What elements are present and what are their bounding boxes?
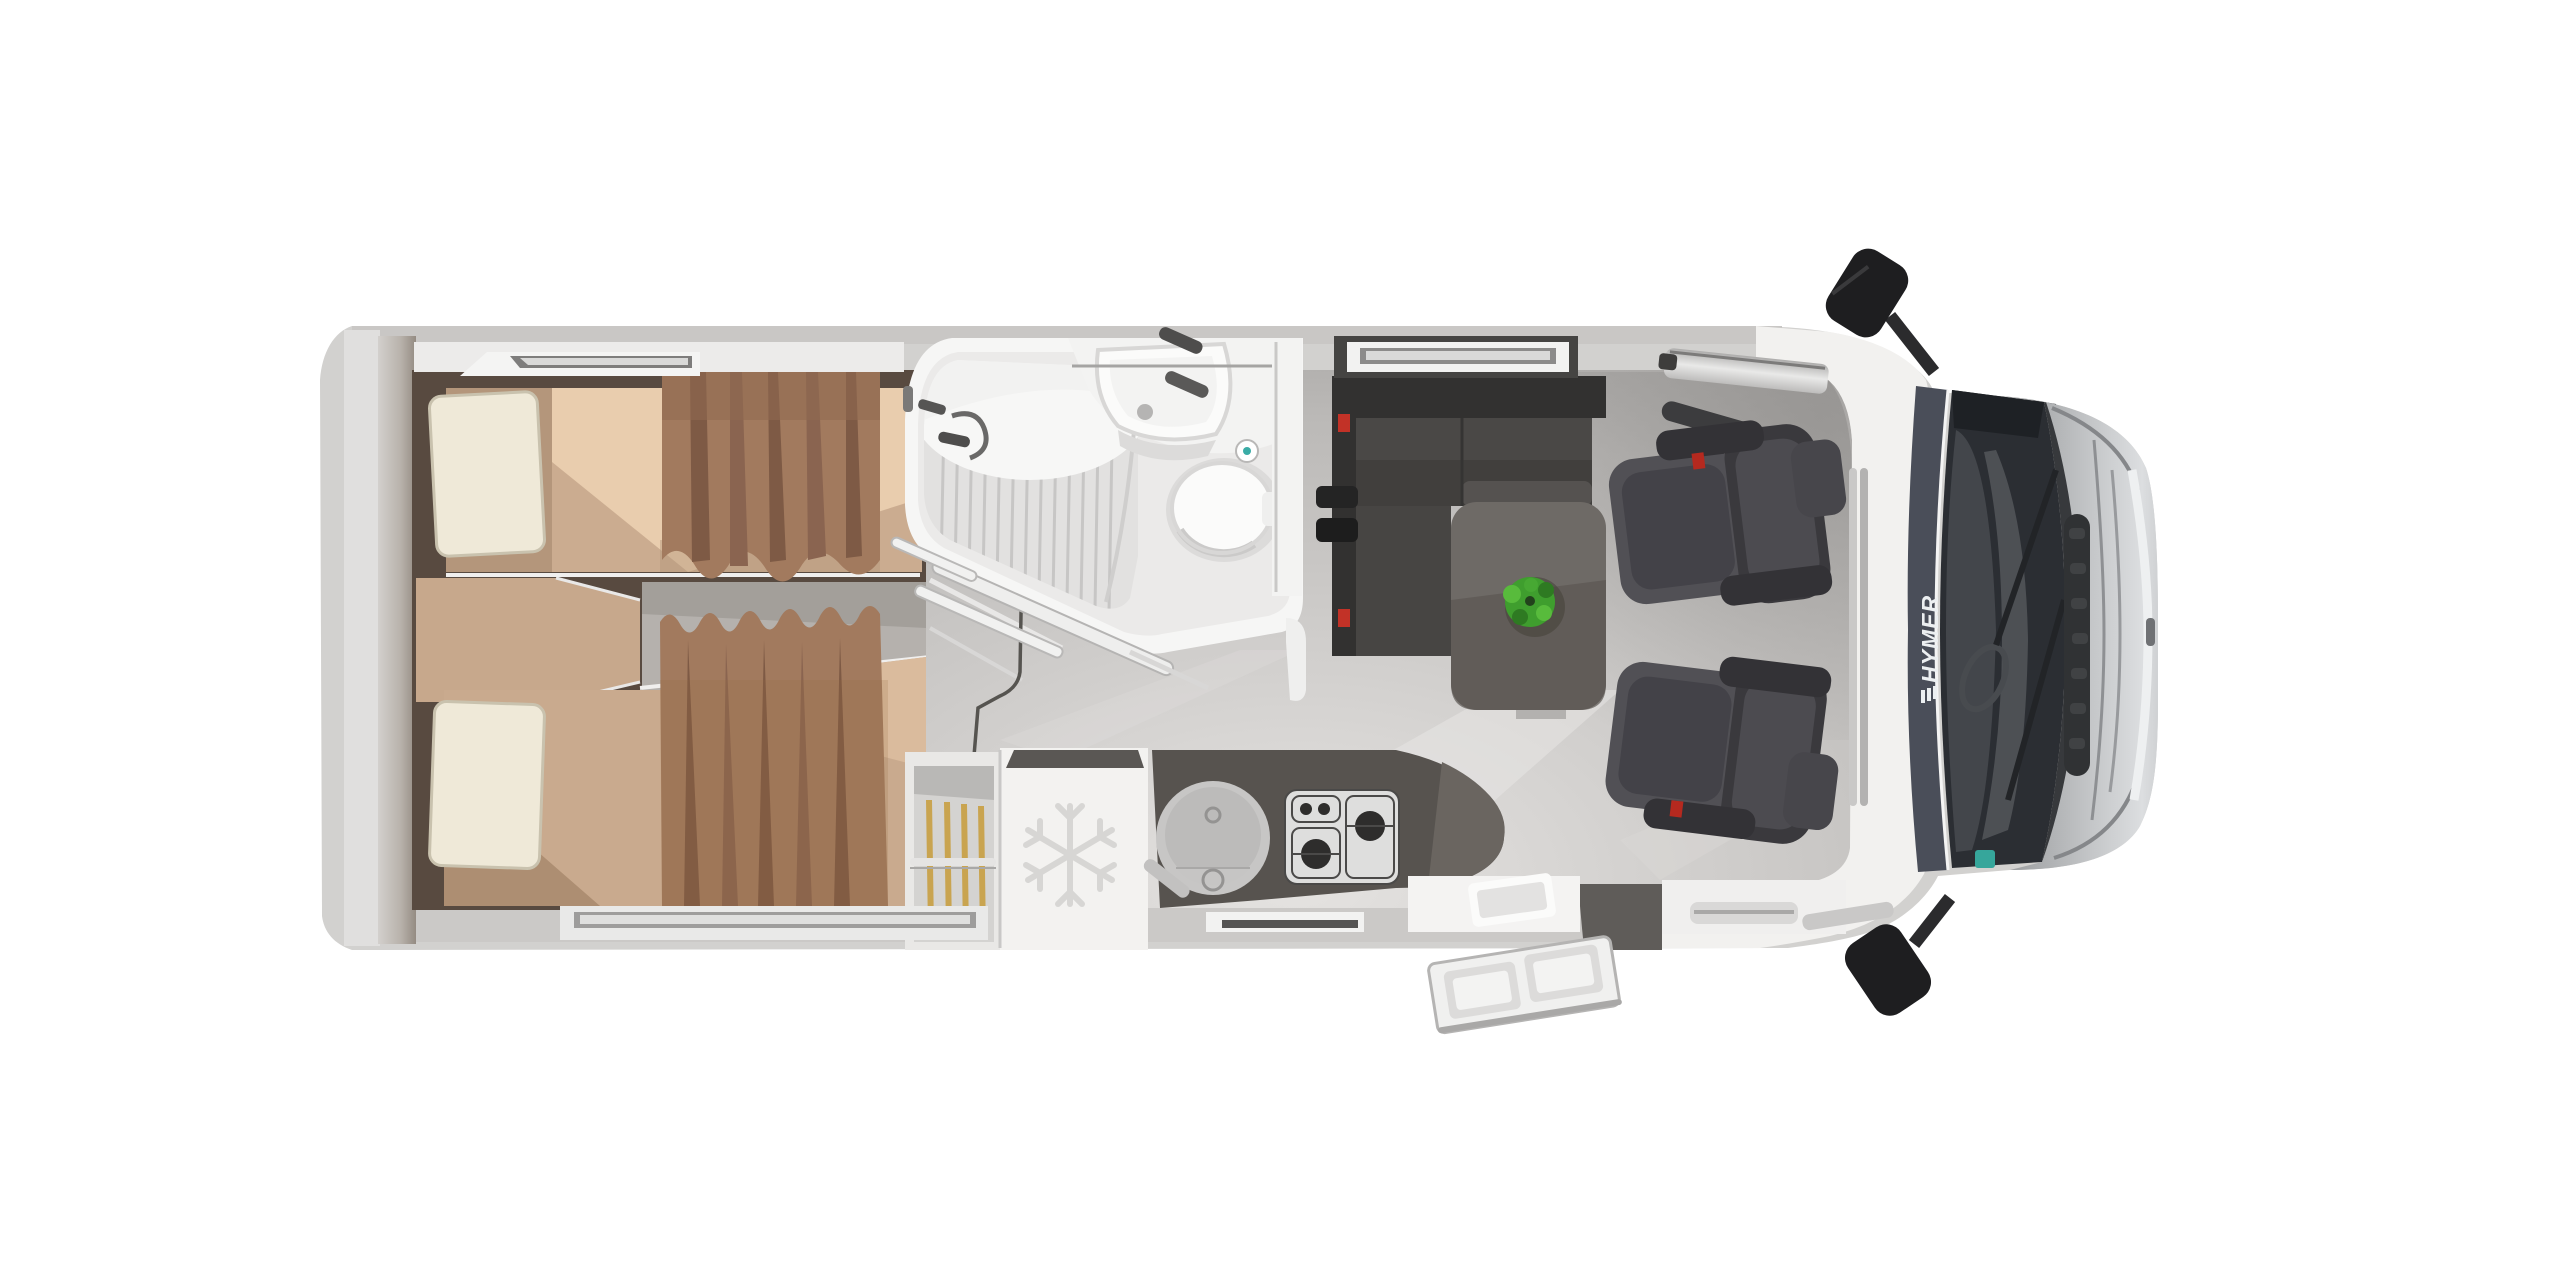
svg-text:HYMER: HYMER: [1917, 595, 1943, 683]
